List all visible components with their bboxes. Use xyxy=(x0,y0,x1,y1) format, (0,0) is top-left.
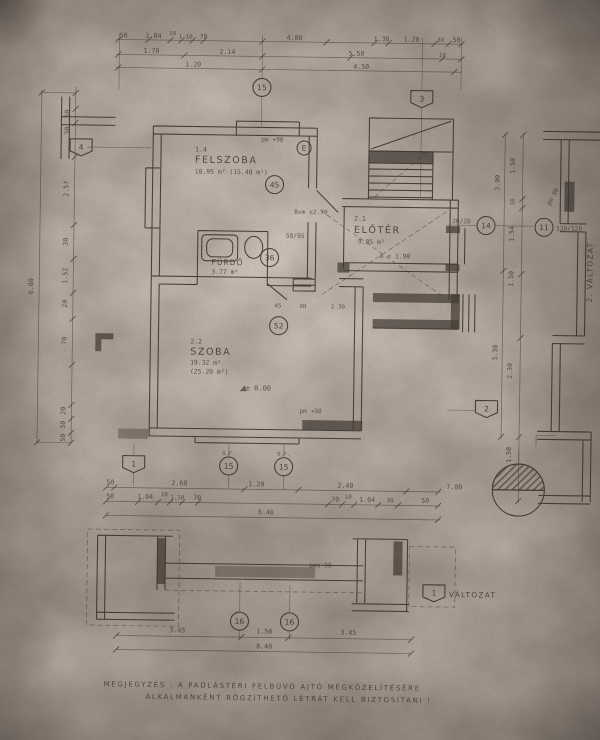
scanned-floor-plan-sheet: 1.4 FELSZOBA 10.95 m² (15.40 m²) 2.1 ELŐ… xyxy=(0,0,600,740)
light-patch-noise xyxy=(0,0,600,740)
paper-texture-grain xyxy=(0,0,600,740)
